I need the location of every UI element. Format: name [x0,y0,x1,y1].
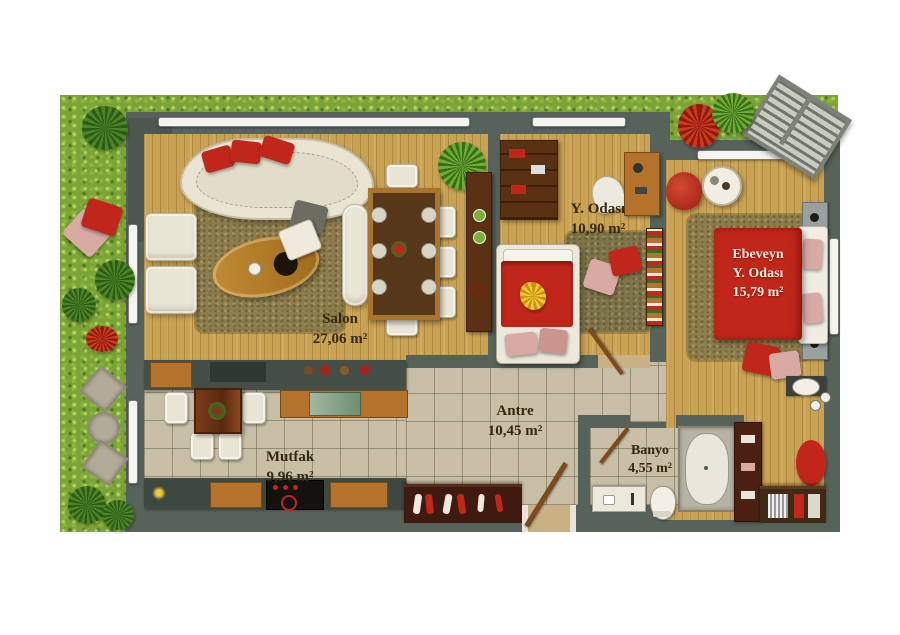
dressing-cabinet [734,422,762,522]
place-setting-6 [421,279,437,295]
dressing-oval-rug [796,440,826,486]
garden-spiky-plant-3 [68,486,106,524]
kitchen-sink-slab [210,362,266,382]
towel-1 [741,435,755,443]
kitchen-chair-bottom-1 [190,432,214,460]
salon-armchair-1 [145,213,197,261]
parent-bed: Ebeveyn Y. Odası 15,79 m² [714,228,802,340]
stepping-stone-round [88,412,120,444]
vanity-sink [792,378,820,396]
counter-item-2 [320,365,330,375]
kitchen-deco-flower [152,486,166,500]
shoe-4 [457,494,467,515]
dining-table [368,188,440,320]
parent-armchair [666,172,702,210]
shoe-3 [442,494,452,515]
kitchen-left-window [128,400,138,484]
parent-bed-mattress [798,226,828,344]
console-plate-2 [473,231,486,244]
shoe-cabinet [404,484,522,523]
child-bookshelf [646,228,663,326]
round-table-plate-2 [722,182,730,190]
wardrobe-item-3 [511,185,526,194]
toilet [650,486,676,520]
salon-armchair-2 [145,266,197,314]
shoe-1 [413,494,423,515]
hanging-clothes-white [808,494,820,518]
round-table-plate-1 [710,176,719,185]
bath-sink-tap [631,493,634,505]
kitchen-cabinet-left [150,362,192,388]
bath-wall-top-left [578,415,630,428]
kitchen-label: Mutfak 9,96 m² [230,448,350,487]
parent-room-label: Ebeveyn Y. Odası 15,79 m² [714,246,802,303]
desk-lamp [633,163,643,173]
parent-room-area: 15,79 m² [714,284,802,303]
antre-area: 10,45 m² [450,422,580,442]
child-room-name: Y. Odası [540,200,656,220]
bath-name: Banyo [592,442,708,460]
garden-spiky-plant-2 [62,288,96,322]
child-top-window [532,117,626,127]
shoe-5 [477,494,485,512]
place-setting-2 [371,243,387,259]
console-plate-1 [473,209,486,222]
garden-red-plant-left [86,326,118,352]
toilet-tank [653,511,671,517]
stove-burner [281,495,297,511]
parent-right-window [829,238,839,335]
salon-area: 27,06 m² [280,330,400,350]
salon-label: Salon 27,06 m² [280,310,400,349]
towel-2 [741,463,755,471]
kitchen-chair-right [242,392,266,424]
kitchen-wall-cabinets [280,390,408,418]
desk-item [635,187,647,194]
garden-spiky-plant-1 [95,260,135,300]
place-setting-3 [371,279,387,295]
garden-green-plant-top [712,93,754,133]
place-setting-4 [421,207,437,223]
garden-spiky-plant-4 [102,500,134,530]
child-room-area: 10,90 m² [540,220,656,240]
vanity-mirror-dot-1 [810,400,821,411]
kitchen-table [194,388,242,434]
vanity-mirror-dot-2 [820,392,831,403]
towel-3 [741,491,755,499]
dressing-wardrobe [760,486,826,523]
parent-round-table [702,166,742,206]
parent-bed-pillow-2 [801,292,824,324]
parent-bed-pillow-1 [801,238,823,269]
kitchen-table-wreath [208,402,226,420]
console-wreath [472,283,485,296]
kitchen-chair-left [164,392,188,424]
trellis-center-bar [779,97,812,145]
child-room-label: Y. Odası 10,90 m² [540,200,656,239]
child-bed-foot-pillow-1 [504,331,538,356]
bath-label: Banyo 4,55 m² [592,442,708,478]
place-setting-5 [421,243,437,259]
child-bed-foot-pillow-2 [538,328,568,355]
salon-console [466,172,492,332]
wardrobe-item-1 [509,149,525,158]
bath-area: 4,55 m² [592,460,708,478]
salon-name: Salon [280,310,400,330]
kitchen-glass-cabinet [309,392,361,416]
child-bed-toy [520,282,546,310]
antre-label: Antre 10,45 m² [450,402,580,441]
table-centerpiece [391,241,407,257]
kitchen-name: Mutfak [230,448,350,468]
nightstand-lamp-top [810,213,819,222]
antre-name: Antre [450,402,580,422]
bath-sink-counter [592,486,646,512]
wardrobe-item-2 [531,165,545,174]
garden-plant-topleft [82,106,128,150]
parent-room-name-line1: Ebeveyn [714,246,802,265]
counter-item-4 [360,365,370,375]
kitchen-counter-top [144,360,406,390]
kitchen-area: 9,96 m² [230,468,350,488]
child-door-threshold [598,355,650,368]
salon-top-window [158,117,470,127]
dining-bench [342,204,368,306]
vanity-counter [786,376,826,396]
counter-item-3 [340,366,349,375]
parent-room-name-line2: Y. Odası [714,265,802,284]
hanging-clothes-red [794,494,804,518]
counter-item-1 [304,366,313,375]
bath-sink-soap [603,495,615,505]
dining-chair-top [386,164,418,188]
floor-plan-canvas: Ebeveyn Y. Odası 15,79 m² Salon 27,06 m² [0,0,900,635]
threshold-cap-right [570,505,576,532]
shoe-6 [494,494,503,513]
shoe-2 [425,494,434,515]
place-setting-1 [371,207,387,223]
sofa-pillow-2 [230,139,262,164]
hanging-clothes-striped [768,494,788,518]
coffee-table-cup [247,261,262,276]
